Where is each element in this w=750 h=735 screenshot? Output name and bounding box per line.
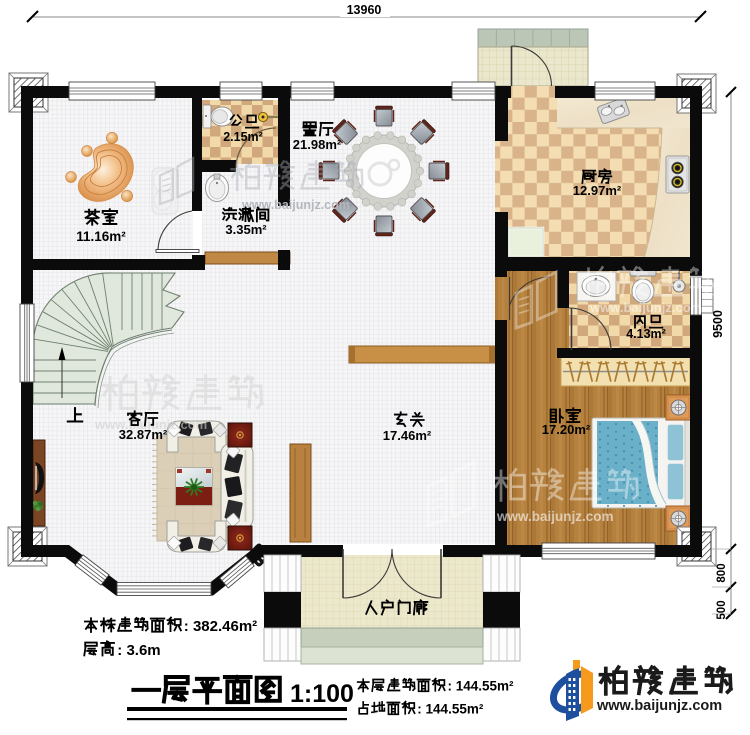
svg-text:13960: 13960 xyxy=(347,3,382,17)
svg-text:www.baijunjz.com: www.baijunjz.com xyxy=(589,300,702,315)
svg-text:www.baijunjz.com: www.baijunjz.com xyxy=(496,509,614,524)
svg-text:500: 500 xyxy=(716,600,728,619)
svg-text:32.87m²: 32.87m² xyxy=(119,427,168,442)
svg-text:11.16m²: 11.16m² xyxy=(76,229,126,244)
svg-text:: 3.6m: : 3.6m xyxy=(117,642,160,659)
svg-text:2.15m²: 2.15m² xyxy=(223,130,263,144)
svg-text:12.97m²: 12.97m² xyxy=(573,183,622,198)
svg-text:: 144.55m²: : 144.55m² xyxy=(448,679,515,694)
svg-text:www.baijunjz.com: www.baijunjz.com xyxy=(596,698,722,714)
svg-text:: 382.46m²: : 382.46m² xyxy=(184,618,257,635)
svg-text:21.98m²: 21.98m² xyxy=(293,137,342,152)
svg-text:: 144.55m²: : 144.55m² xyxy=(417,702,484,717)
svg-text:9500: 9500 xyxy=(711,310,725,338)
svg-text:1:100: 1:100 xyxy=(290,680,354,708)
svg-text:17.20m²: 17.20m² xyxy=(542,422,591,437)
svg-text:3.35m²: 3.35m² xyxy=(225,222,267,237)
svg-text:4.13m²: 4.13m² xyxy=(626,327,666,341)
svg-text:800: 800 xyxy=(716,563,728,582)
svg-text:17.46m²: 17.46m² xyxy=(383,428,432,443)
